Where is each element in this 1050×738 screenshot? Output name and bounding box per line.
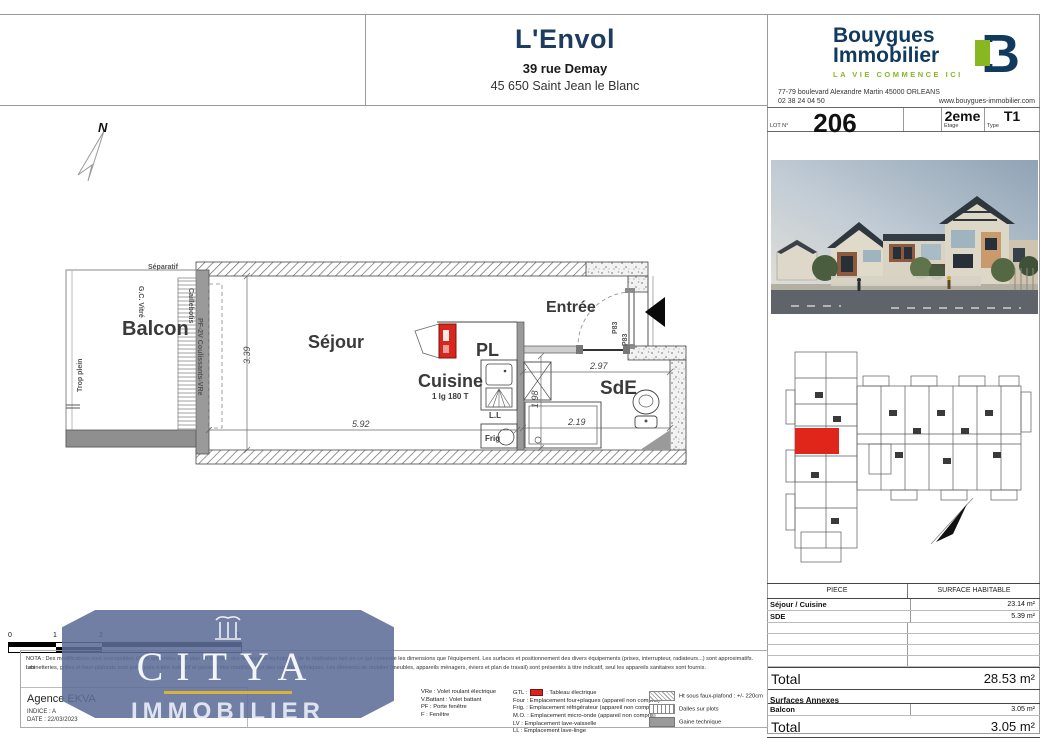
label-door-p83-2: P83	[622, 333, 629, 346]
project-city: 45 650 Saint Jean le Blanc	[365, 79, 765, 93]
project-street: 39 rue Demay	[365, 61, 765, 76]
scale-0: 0	[8, 632, 12, 639]
room-label-cuisine: Cuisine	[418, 371, 483, 391]
brand-tagline: LA VIE COMMENCE ICI	[833, 70, 963, 79]
dim-sejour-width: 5.92	[352, 419, 370, 429]
legend-column-equipment: GTL :: Tableau électrique Four : Emplace…	[513, 689, 660, 736]
brand-website: www.bouygues-immobilier.com	[900, 98, 1035, 105]
row-surface: 5.39 m²	[911, 611, 1040, 622]
total-label: Total	[767, 671, 801, 687]
legend-gtl: GTL :: Tableau électrique	[513, 689, 660, 698]
label-door-p83-1: P83	[612, 321, 619, 334]
lot-floor-value: 2eme	[945, 108, 981, 124]
label-lave-linge: L.L	[489, 411, 501, 420]
wall-top-entrance	[586, 262, 648, 276]
row-surface: 23.14 m²	[911, 599, 1040, 610]
gray-swatch	[649, 717, 675, 727]
brand-name-line1: Bouygues	[833, 26, 963, 46]
dim-sde-width2: 2.19	[567, 417, 586, 427]
row-surface: 3.05 m²	[911, 704, 1040, 715]
wall-right	[670, 360, 686, 464]
top-border	[0, 14, 1040, 15]
bouygues-b-logo-icon: B	[973, 26, 1025, 82]
room-label-sejour: Séjour	[308, 332, 364, 352]
watermark-title: CITYA	[62, 647, 394, 687]
surface-table-header: PIECE SURFACE HABITABLE	[767, 583, 1040, 599]
row-piece: Balcon	[767, 704, 911, 715]
dim-sde-width: 2.97	[589, 361, 609, 371]
label-trop-plein: Trop plein	[77, 359, 84, 392]
brand-block: Bouygues Immobilier LA VIE COMMENCE ICI …	[833, 26, 1033, 82]
lot-number-label: LOT N°	[770, 123, 788, 129]
total-value: 28.53 m²	[801, 671, 1040, 686]
lot-floor-label: Etage	[944, 123, 958, 129]
scale-1: 1	[53, 632, 57, 639]
hatch-swatch	[649, 691, 675, 701]
agency-indice: INDICE : A	[27, 709, 56, 715]
lot-floor-cell: 2eme Etage	[941, 108, 984, 131]
citya-column-icon	[206, 614, 250, 640]
watermark-underline	[164, 691, 292, 694]
room-label-balcon: Balcon	[122, 318, 189, 340]
brand-phone: 02 38 24 04 50	[778, 98, 825, 105]
annex-total-value: 3.05 m²	[801, 719, 1040, 734]
annexes-header-row: Surfaces Annexes	[767, 690, 1040, 704]
building-render-photo	[771, 160, 1038, 314]
label-caillebotis: Caillebotis	[187, 288, 194, 324]
room-label-cuisine-sub: 1 lg 180 T	[432, 392, 469, 401]
lot-type-value: T1	[1004, 108, 1020, 124]
sde-partition	[523, 345, 630, 354]
svg-text:N: N	[98, 120, 108, 135]
table-row-empty	[767, 623, 1040, 634]
label-gc-vitre: G.C. Vitré	[137, 286, 144, 318]
label-separatif: Séparatif	[148, 264, 179, 271]
lot-number-cell: 206 LOT N°	[767, 108, 903, 131]
total-row: Total 28.53 m²	[767, 667, 1040, 690]
table-row: Balcon 3.05 m²	[767, 704, 1040, 716]
annex-total-label: Total	[767, 719, 801, 735]
table-row-empty	[767, 634, 1040, 645]
lot-number: 206	[813, 108, 856, 138]
lot-type-cell: T1 Type	[984, 108, 1040, 131]
wall-entree-sde	[628, 346, 686, 360]
annex-total-row: Total 3.05 m²	[767, 716, 1040, 738]
room-label-pl: PL	[476, 340, 499, 360]
title-block: L'Envol 39 rue Demay 45 650 Saint Jean l…	[365, 24, 765, 93]
col-header-piece: PIECE	[767, 584, 908, 598]
surface-table: PIECE SURFACE HABITABLE Séjour / Cuisine…	[767, 583, 1040, 738]
project-title: L'Envol	[365, 24, 765, 55]
dim-sde-height: 1.98	[530, 390, 540, 408]
label-frigo: Frig	[485, 434, 500, 443]
dim-sejour-height: 3.39	[242, 346, 252, 364]
agency-date: DATE : 22/03/2023	[27, 717, 78, 723]
floorplan-document: L'Envol 39 rue Demay 45 650 Saint Jean l…	[0, 0, 1050, 738]
kitchen-sink-unit	[481, 360, 517, 410]
lot-row: 206 LOT N° 2eme Etage T1 Type	[767, 107, 1040, 132]
siteplan-compass-icon	[931, 498, 973, 544]
label-coulissants: PF-2V Coulissants-VRe	[196, 318, 203, 396]
row-piece: Séjour / Cuisine	[767, 599, 911, 610]
highlighted-unit	[795, 428, 839, 454]
table-row: Séjour / Cuisine 23.14 m²	[767, 599, 1040, 611]
table-row: SDE 5.39 m²	[767, 611, 1040, 623]
room-label-sde: SdE	[600, 378, 637, 399]
citya-watermark: CITYA IMMOBILIER	[62, 610, 394, 718]
electrical-panel-gtl	[415, 324, 456, 358]
table-row-empty	[767, 656, 1040, 667]
lot-type-label: Type	[987, 123, 999, 129]
legend-column-symbols: Ht sous faux-plafond : +/- 220cm Dalles …	[649, 691, 763, 728]
row-piece: SDE	[767, 611, 911, 622]
wall-bottom	[196, 450, 686, 464]
col-header-surface: SURFACE HABITABLE	[908, 584, 1040, 598]
brand-name-line2: Immobilier	[833, 46, 963, 66]
table-row-empty	[767, 645, 1040, 656]
north-compass-icon: N	[78, 120, 108, 181]
floor-plan: N	[0, 105, 765, 645]
room-label-entree: Entrée	[546, 299, 596, 316]
wall-top	[196, 262, 590, 276]
brand-address: 77-79 boulevard Alexandre Martin 45000 O…	[778, 89, 940, 96]
gaine-technique	[640, 430, 670, 450]
gtl-red-swatch	[530, 689, 543, 696]
legend-column-openings: VRe : Volet roulant électrique V.Battant…	[421, 689, 496, 720]
key-site-plan	[771, 332, 1038, 580]
grid-swatch	[649, 704, 675, 714]
